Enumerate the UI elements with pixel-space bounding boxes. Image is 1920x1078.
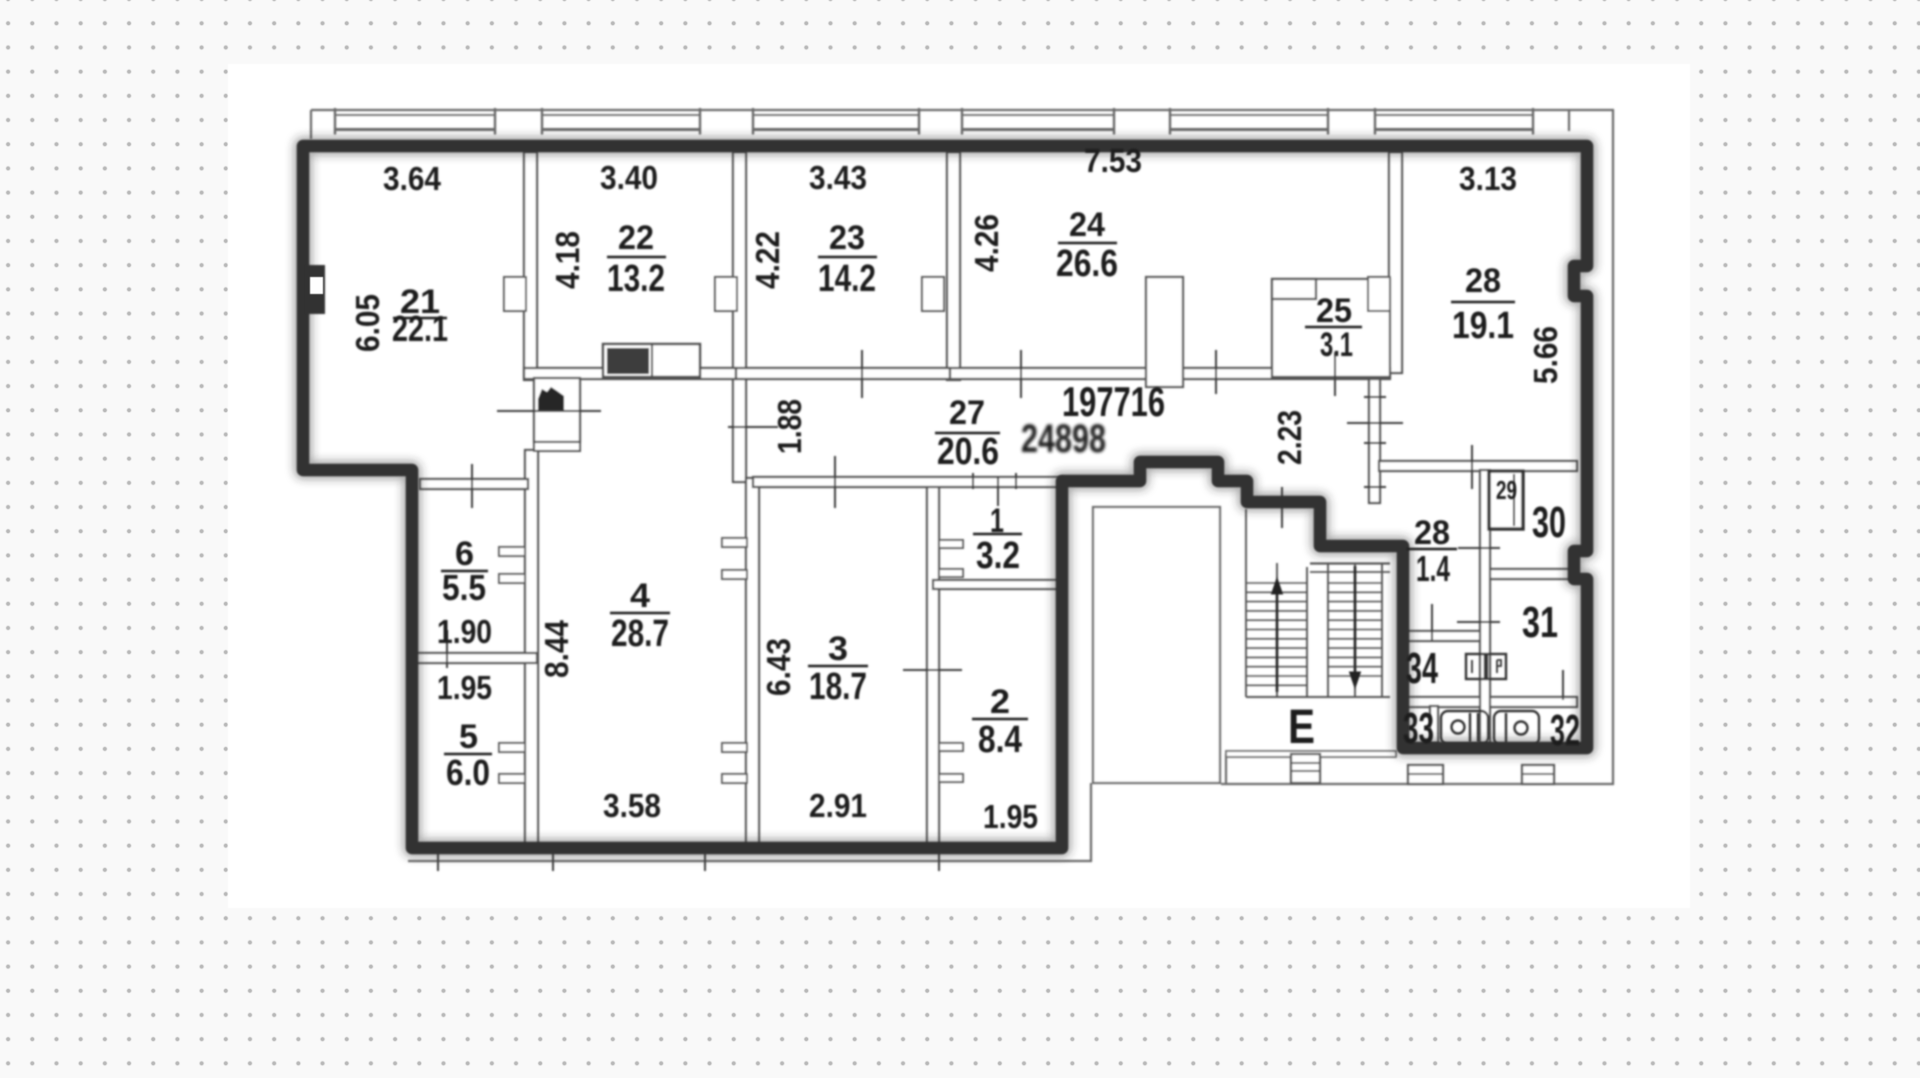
svg-text:6.0: 6.0 (446, 752, 490, 793)
svg-text:3.58: 3.58 (603, 787, 661, 824)
svg-text:28: 28 (1465, 262, 1501, 300)
svg-text:27: 27 (949, 394, 985, 432)
svg-text:19.1: 19.1 (1452, 305, 1514, 347)
svg-text:30: 30 (1532, 498, 1566, 547)
svg-text:2.91: 2.91 (809, 787, 867, 824)
svg-text:5: 5 (459, 718, 478, 756)
svg-text:8.4: 8.4 (978, 719, 1022, 761)
svg-text:28.7: 28.7 (611, 613, 669, 655)
svg-text:4.26: 4.26 (968, 214, 1005, 272)
svg-text:7.53: 7.53 (1084, 142, 1142, 179)
svg-text:24: 24 (1069, 206, 1105, 244)
svg-text:28: 28 (1414, 514, 1450, 552)
svg-text:5.5: 5.5 (442, 567, 486, 608)
svg-text:6.43: 6.43 (760, 638, 797, 696)
svg-text:23: 23 (829, 219, 865, 257)
svg-text:3.64: 3.64 (383, 160, 442, 197)
svg-text:22: 22 (618, 219, 654, 257)
svg-text:2.23: 2.23 (1271, 410, 1308, 465)
svg-text:4: 4 (630, 577, 650, 615)
svg-text:4.22: 4.22 (749, 231, 786, 289)
svg-text:31: 31 (1522, 598, 1558, 647)
svg-text:1.95: 1.95 (437, 669, 492, 706)
svg-text:24898: 24898 (1021, 417, 1106, 461)
svg-text:29: 29 (1496, 475, 1517, 505)
svg-text:33: 33 (1403, 704, 1434, 753)
svg-text:18.7: 18.7 (809, 666, 867, 708)
svg-text:8.44: 8.44 (538, 619, 575, 678)
svg-text:13.2: 13.2 (607, 258, 665, 300)
svg-text:1.95: 1.95 (983, 798, 1038, 835)
svg-text:2: 2 (990, 683, 1010, 721)
svg-text:3.2: 3.2 (976, 535, 1020, 577)
svg-text:32: 32 (1550, 706, 1580, 755)
svg-text:3.1: 3.1 (1320, 326, 1353, 364)
svg-text:1.88: 1.88 (771, 399, 808, 454)
svg-text:22.1: 22.1 (392, 308, 448, 349)
svg-text:14.2: 14.2 (818, 258, 876, 300)
svg-text:5.66: 5.66 (1527, 326, 1564, 384)
svg-text:20.6: 20.6 (937, 431, 999, 473)
svg-text:3: 3 (828, 630, 848, 668)
svg-text:1.4: 1.4 (1416, 548, 1450, 589)
svg-text:26.6: 26.6 (1056, 243, 1118, 285)
svg-text:3.13: 3.13 (1459, 160, 1517, 197)
svg-text:1.90: 1.90 (437, 613, 492, 650)
svg-text:3.40: 3.40 (600, 159, 658, 196)
svg-text:6.05: 6.05 (349, 294, 386, 352)
svg-text:25: 25 (1316, 292, 1352, 330)
svg-text:3.43: 3.43 (809, 159, 867, 196)
svg-text:34: 34 (1406, 644, 1438, 693)
svg-text:E: E (1288, 701, 1315, 754)
svg-text:4.18: 4.18 (549, 231, 586, 289)
